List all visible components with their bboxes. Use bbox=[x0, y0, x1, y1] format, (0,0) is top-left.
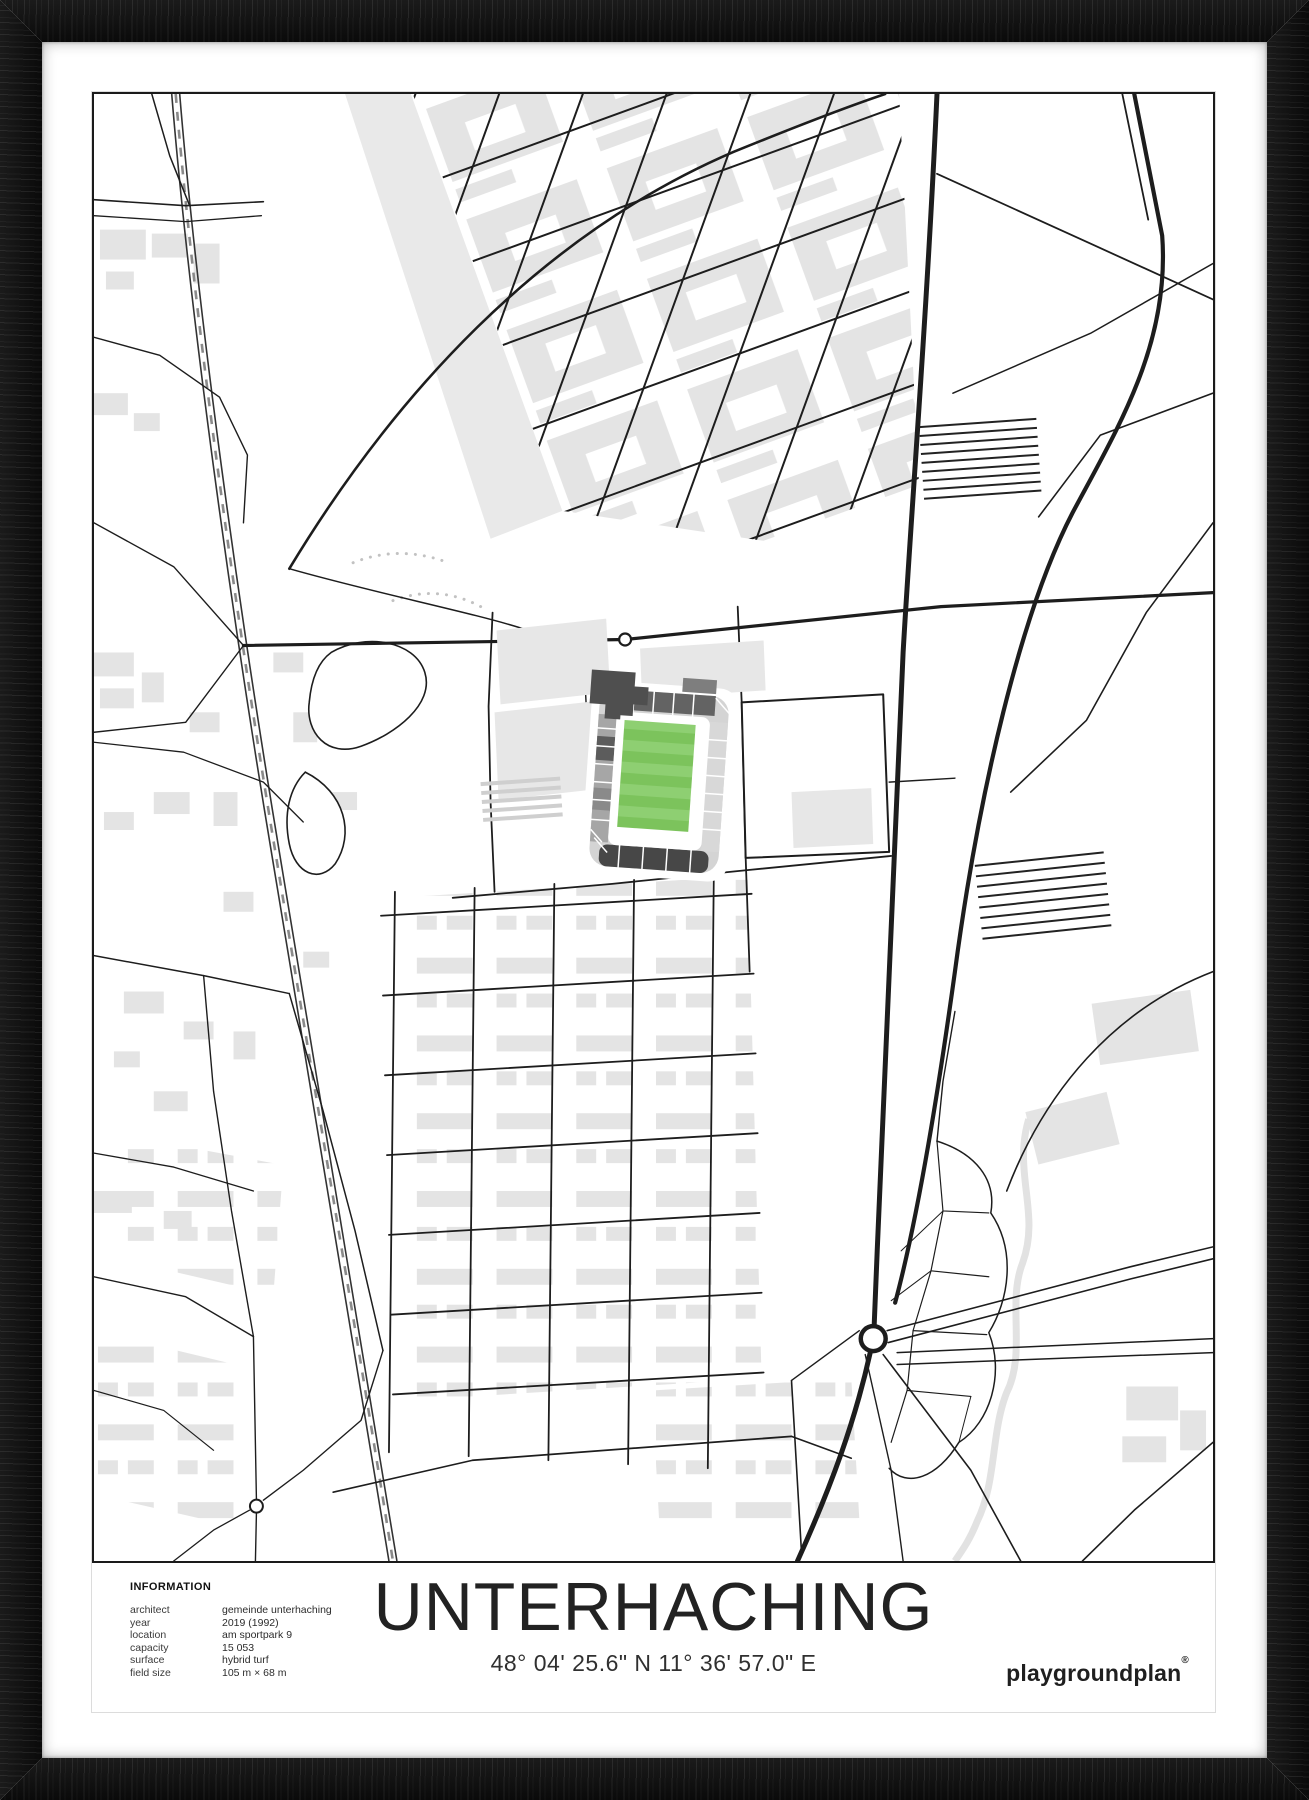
brand-logo: playgroundplan® bbox=[1006, 1655, 1189, 1687]
brand-name: playgroundplan bbox=[1006, 1660, 1181, 1686]
registered-mark: ® bbox=[1181, 1655, 1189, 1666]
frame-top bbox=[0, 0, 1309, 42]
framed-poster: INFORMATION architect gemeinde unterhach… bbox=[0, 0, 1309, 1800]
roundabout bbox=[861, 1326, 886, 1351]
frame-right bbox=[1267, 0, 1309, 1800]
poster-footer: INFORMATION architect gemeinde unterhach… bbox=[92, 1563, 1215, 1712]
stadium-map bbox=[92, 92, 1215, 1563]
frame-mat: INFORMATION architect gemeinde unterhach… bbox=[42, 42, 1267, 1758]
map-graphic bbox=[94, 94, 1213, 1561]
poster-paper: INFORMATION architect gemeinde unterhach… bbox=[92, 92, 1215, 1712]
frame-left bbox=[0, 0, 42, 1800]
poster-title: UNTERHACHING bbox=[92, 1573, 1215, 1641]
junction-dot bbox=[619, 634, 631, 646]
frame-bottom bbox=[0, 1758, 1309, 1800]
roundabout-small bbox=[250, 1500, 263, 1513]
stadium-pitch bbox=[615, 718, 698, 835]
stadium bbox=[578, 669, 741, 882]
